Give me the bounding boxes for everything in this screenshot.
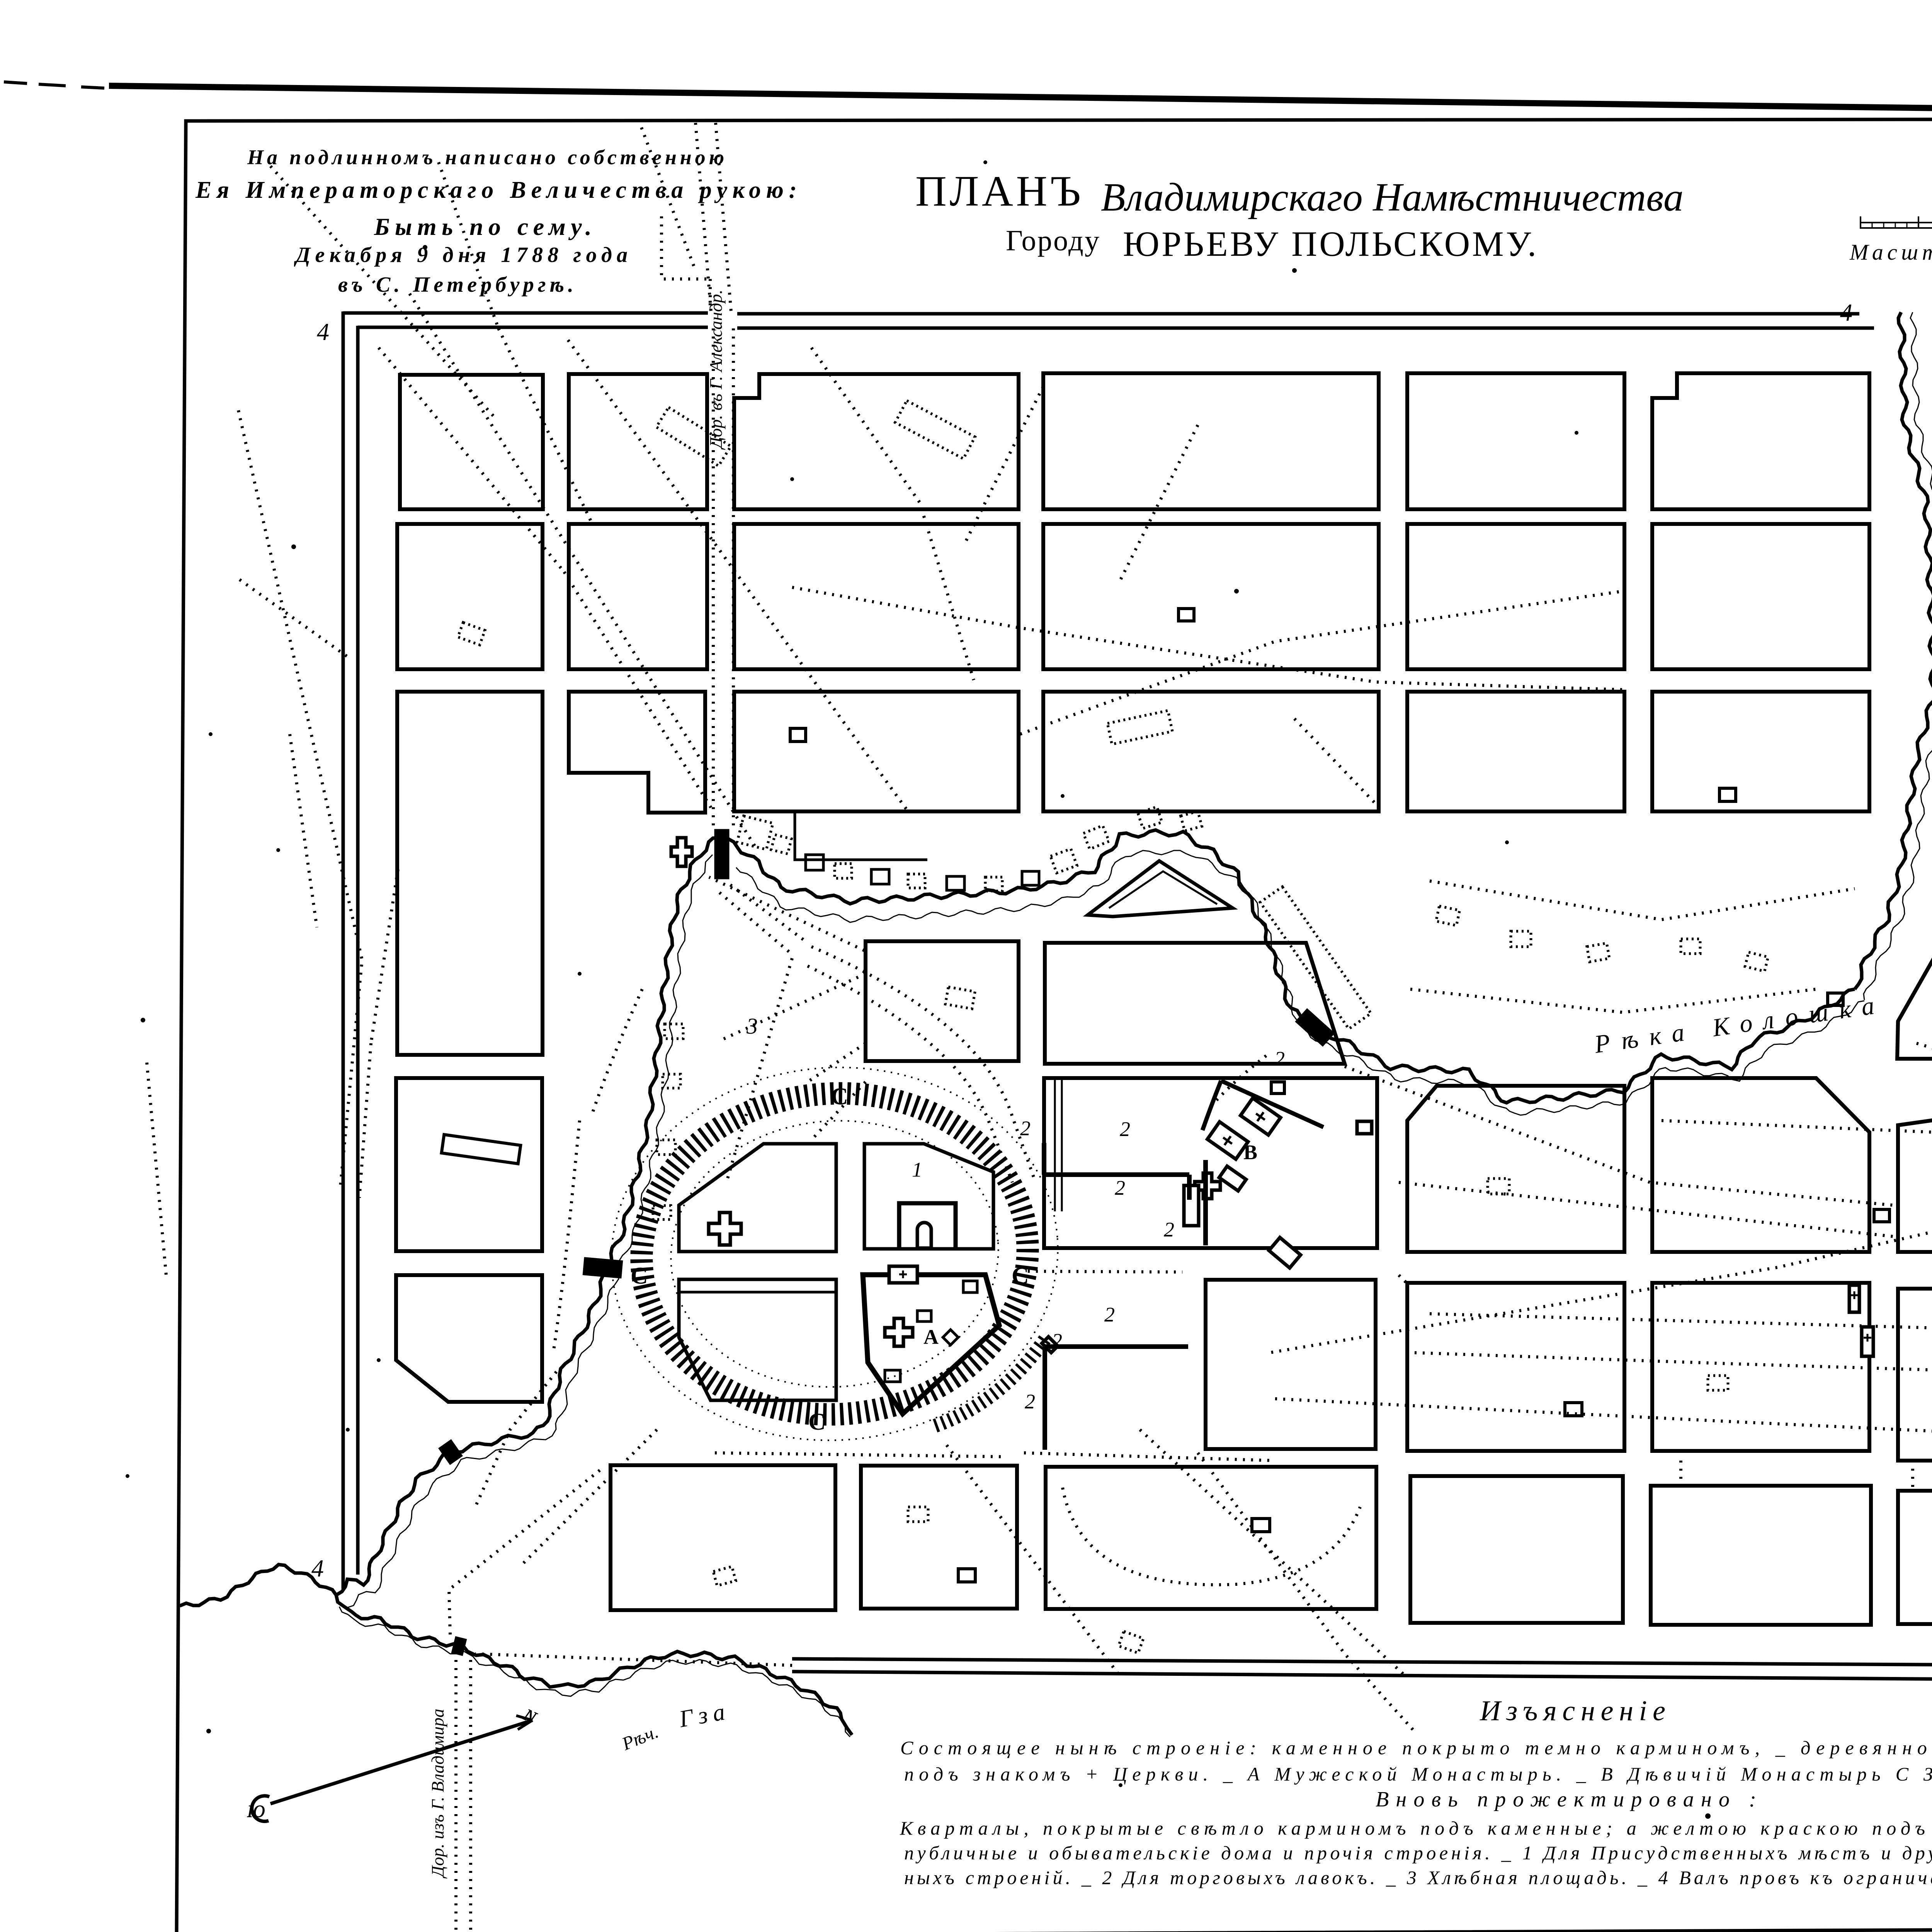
svg-text:На подлинномъ написано собстве: На подлинномъ написано собственною — [247, 146, 724, 169]
svg-text:4: 4 — [317, 318, 329, 345]
svg-text:Владимирскаго Намѣстничества: Владимирскаго Намѣстничества — [1101, 175, 1684, 219]
svg-text:публичные и обывательскіе дома: публичные и обывательскіе дома и прочія … — [904, 1842, 1932, 1864]
svg-text:2: 2 — [1020, 1117, 1031, 1140]
svg-text:2: 2 — [1164, 1218, 1174, 1241]
svg-text:Быть по сему.: Быть по сему. — [374, 213, 592, 240]
svg-text:C: C — [831, 1083, 848, 1110]
svg-text:1: 1 — [912, 1158, 922, 1181]
svg-text:2: 2 — [1115, 1176, 1125, 1199]
svg-text:C: C — [1012, 1263, 1029, 1289]
svg-text:3: 3 — [746, 1014, 758, 1039]
svg-text:2: 2 — [1120, 1117, 1130, 1141]
svg-text:Дор. изъ Г. Владимира: Дор. изъ Г. Владимира — [428, 1709, 447, 1879]
svg-text:2: 2 — [1025, 1390, 1035, 1413]
svg-text:Дор. въ Г. Александр.: Дор. въ Г. Александр. — [706, 289, 726, 450]
svg-text:Ю: Ю — [247, 1802, 265, 1821]
svg-text:ЮРЬЕВУ ПОЛЬСКОМУ.: ЮРЬЕВУ ПОЛЬСКОМУ. — [1123, 224, 1538, 264]
svg-text:В: В — [1243, 1141, 1257, 1164]
svg-text:C: C — [808, 1409, 826, 1435]
svg-text:2: 2 — [1052, 1329, 1062, 1352]
svg-text:C: C — [631, 1263, 648, 1289]
svg-text:4: 4 — [1840, 299, 1852, 326]
svg-text:А: А — [923, 1325, 939, 1349]
svg-text:ПЛАНЪ: ПЛАНЪ — [915, 167, 1083, 215]
svg-text:2: 2 — [1104, 1303, 1115, 1326]
svg-text:2: 2 — [1274, 1047, 1285, 1070]
